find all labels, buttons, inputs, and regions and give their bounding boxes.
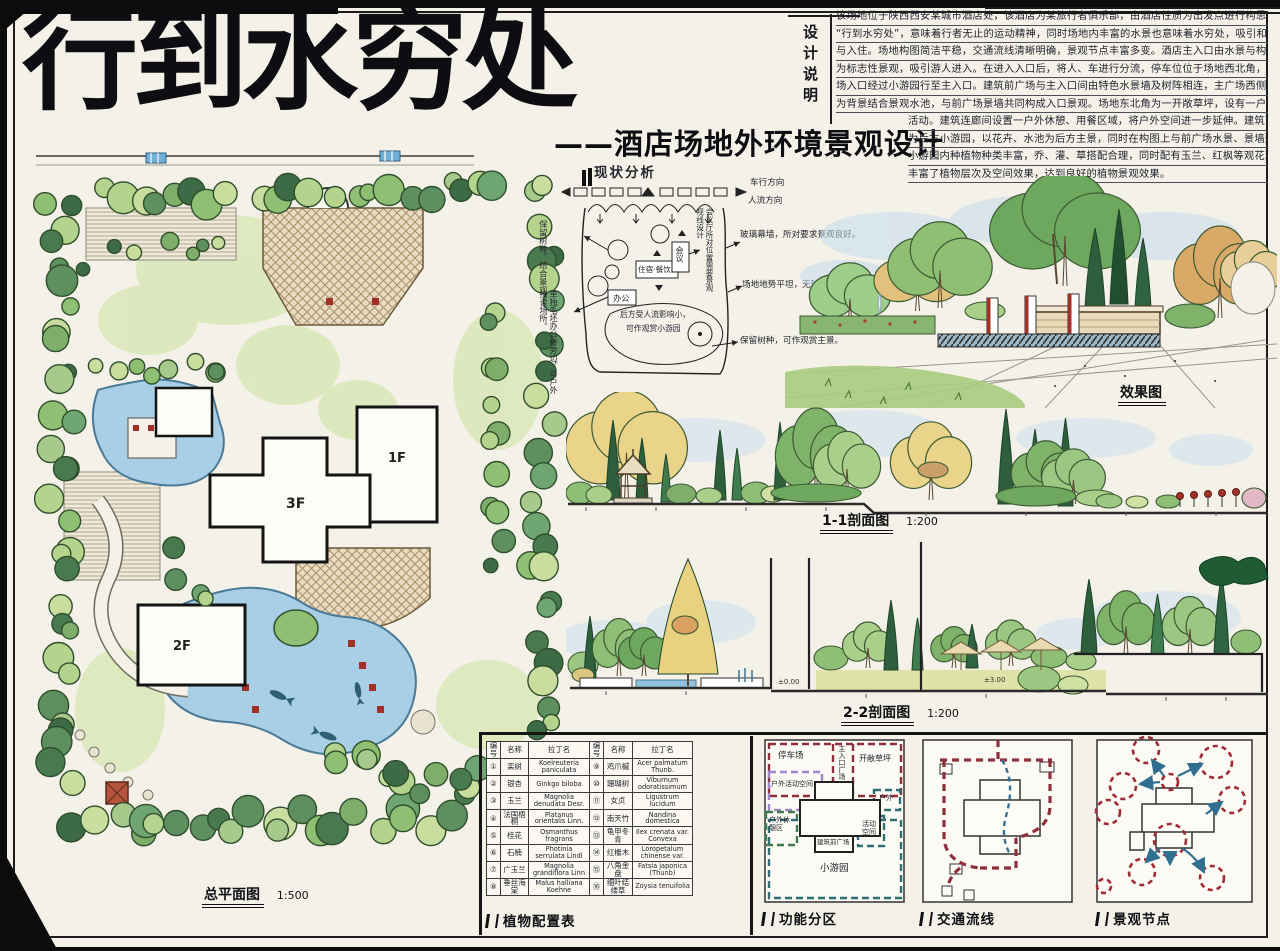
zone-lawn: 开敞草坪 — [859, 754, 891, 763]
section-2-2-scale: 1:200 — [927, 707, 959, 720]
section-1-1-drawing — [566, 392, 1270, 518]
plant-cell: Nandina domestica — [633, 810, 693, 827]
plant-cell: Malus halliana Koehne — [529, 878, 590, 895]
entry-plaza-paving — [263, 208, 423, 325]
plant-cell: 垂丝海棠 — [501, 878, 529, 895]
master-plan-caption-text: 总平面图 — [202, 887, 264, 908]
design-notes-line: 小游园内种植物种类丰富，乔、灌、草搭配合理，同时配有玉兰、红枫等观花观叶、色叶树… — [908, 148, 1268, 166]
spiral-feature — [411, 710, 435, 734]
building-annex — [156, 388, 212, 436]
pine-branch — [1199, 556, 1268, 585]
plant-cell: 龟甲冬青 — [604, 827, 633, 844]
presentation-board: 行到水穷处 ——酒店场地外环境景观设计 设计说明 该场地位于陕西西安某城市酒店处… — [0, 0, 1280, 951]
scan-line-top-right-1 — [985, 7, 1280, 9]
circulation-panel — [920, 736, 1076, 906]
plant-cell: ⑫ — [590, 810, 604, 827]
plant-table-row: ⑥石楠Photinia serrulata Lindl⑭红檵木Loropetal… — [487, 844, 693, 861]
plant-cell: ⑪ — [590, 793, 604, 810]
design-notes-label: 设计说明 — [800, 24, 821, 128]
plant-table-row: ③玉兰Magnolia denudata Desr.⑪女贞Ligustrum l… — [487, 793, 693, 810]
zoning-caption-text: 功能分区 — [779, 912, 837, 928]
plant-cell: ⑩ — [590, 776, 604, 793]
zone-entry-plaza: 主入口广场 — [838, 745, 846, 795]
plant-table-row: ⑤桂花Osmanthus fragrans⑬龟甲冬青Ilex crenata v… — [487, 827, 693, 844]
design-notes-line: 场入口经过小游园行至主入口。建筑前广场与主入口间由特色水景墙及树阵相连，主广场西… — [836, 78, 1268, 96]
plant-cell: 鸡爪槭 — [604, 759, 633, 776]
nodes-caption-text: 景观节点 — [1113, 912, 1171, 928]
zoning-caption: 功能分区 — [762, 908, 837, 928]
zone-outdoor-rest: 户外休憩区 — [769, 816, 793, 832]
plant-table-row: ④法国梧桐Platanus orientalis Linn.⑫南天竹Nandin… — [487, 810, 693, 827]
nodes-caption: 景观节点 — [1096, 908, 1171, 928]
scan-edge-left — [0, 0, 7, 951]
section-1-1-caption: 1-1剖面图 1:200 — [820, 510, 938, 530]
zoning-panel: 停车场 主入口广场 开敞草坪 户外活动空间 户外休憩区 户外 活动空间 建筑前广… — [762, 736, 908, 906]
plant-cell: Photinia serrulata Lindl — [529, 844, 590, 861]
plant-cell: Osmanthus fragrans — [529, 827, 590, 844]
zone-outdoor-activity: 户外活动空间 — [771, 780, 819, 788]
plant-cell: ③ — [487, 793, 501, 810]
level-mark-a: ±0.00 — [778, 678, 799, 686]
plant-cell: ⑭ — [590, 844, 604, 861]
plant-cell: ⑤ — [487, 827, 501, 844]
plant-table-row: ⑧垂丝海棠Malus halliana Koehne⑯细叶结缕草Zoysia t… — [487, 878, 693, 895]
col-header: 拉丁名 — [529, 742, 590, 759]
zone-outdoor: 户外 — [879, 794, 893, 802]
plant-table-caption-text: 植物配置表 — [503, 914, 576, 930]
plant-cell: 广玉兰 — [501, 861, 529, 878]
level-mark-b: ±3.00 — [984, 676, 1005, 684]
plant-cell: Loropetalum chinense var. — [633, 844, 693, 861]
plant-cell: 石楠 — [501, 844, 529, 861]
plant-cell: 栾树 — [501, 759, 529, 776]
rear-garden-note-2: 可作观赏小游园 — [626, 324, 681, 334]
reflecting-pool — [938, 334, 1160, 347]
plant-cell: ④ — [487, 810, 501, 827]
plant-cell: Fatsia japonica (Thunb) — [633, 861, 693, 878]
design-notes-line: 为后方小游园，以花卉、水池为后方主景，同时在构图上与前广场水景、景墙形成景观主轴… — [908, 131, 1268, 149]
design-notes-line: 与入住。场地构图简洁平稳，交通流线清晰明确，景观节点丰富多变。酒店主入口由水景与… — [836, 43, 1268, 61]
vehicle-direction-label: 车行方向 — [750, 178, 784, 189]
divider-horizontal — [482, 732, 1268, 735]
plant-cell: Magnolia denudata Desr. — [529, 793, 590, 810]
master-plan-scale: 1:500 — [277, 889, 309, 902]
plant-table-header-row: 编号 名称 拉丁名 编号 名称 拉丁名 — [487, 742, 693, 759]
analysis-title: 现状分析 — [594, 165, 656, 182]
divider-vertical-mid — [750, 736, 753, 935]
design-notes-line: 为背景结合景观水池，与前广场景墙共同构成入口景观。场地东北角为一开敞草坪，设有一… — [836, 96, 1268, 114]
plant-cell: ① — [487, 759, 501, 776]
plant-cell: Viburnum odoratissimum — [633, 776, 693, 793]
plant-table-row: ①栾树Koelreuteria paniculata⑨鸡爪槭Acer palma… — [487, 759, 693, 776]
plant-cell: Ilex crenata var. Convexa — [633, 827, 693, 844]
section-columns — [771, 542, 921, 691]
floor-label-1f: 1F — [388, 451, 406, 466]
plant-cell: ⑦ — [487, 861, 501, 878]
plant-cell: ⑯ — [590, 878, 604, 895]
plant-cell: 珊瑚树 — [604, 776, 633, 793]
scan-edge-bottom — [0, 947, 1280, 951]
section-2-2-caption: 2-2剖面图 1:200 — [841, 702, 959, 722]
zone-front-plaza: 建筑前广场 — [817, 839, 850, 846]
plant-cell: Platanus orientalis Linn. — [529, 810, 590, 827]
meeting-box-label: 会议 — [674, 246, 684, 274]
plant-cell: 细叶结缕草 — [604, 878, 633, 895]
planter-hedge — [800, 316, 935, 334]
pond-island — [274, 610, 318, 646]
plant-cell: Koelreuteria paniculata — [529, 759, 590, 776]
plant-table-row: ⑦广玉兰Magnolia grandiflora Linn⑮八角金盘Fatsia… — [487, 861, 693, 878]
building-2f — [138, 605, 245, 685]
section-1-1-scale: 1:200 — [906, 515, 938, 528]
circulation-caption: 交通流线 — [920, 908, 995, 928]
meeting-sightline-note: 会议厅所对位置需要景观视线设计 — [690, 208, 714, 294]
section-1-1-caption-text: 1-1剖面图 — [820, 513, 893, 534]
floor-label-2f: 2F — [173, 639, 191, 654]
design-notes-line: 该场地位于陕西西安某城市酒店处，该酒店为某旅行者俱乐部，由酒店性质为出发点进行构… — [836, 8, 1268, 26]
office-note: 单独毛坯办公楼旁边，与户外接读场所。 — [532, 290, 558, 398]
scan-edge-top-thick — [0, 8, 338, 14]
plant-cell: 红檵木 — [604, 844, 633, 861]
col-header: 编号 — [590, 742, 604, 759]
plant-cell: Zoysia tenuifolia — [633, 878, 693, 895]
plant-cell: 八角金盘 — [604, 861, 633, 878]
plant-cell: 银杏 — [501, 776, 529, 793]
zone-garden: 小游园 — [820, 864, 849, 875]
col-header: 名称 — [604, 742, 633, 759]
plant-cell: Ligustrum lucidum — [633, 793, 693, 810]
office-box-label: 办公 — [613, 293, 629, 303]
col-header: 名称 — [501, 742, 529, 759]
scan-line-top-right-2 — [985, 12, 1280, 14]
plant-cell: Ginkgo biloba — [529, 776, 590, 793]
plant-table-caption: 植物配置表 — [486, 910, 576, 930]
section-2-2-drawing: ±0.00 ±3.00 — [566, 542, 1270, 704]
plant-cell: ⑬ — [590, 827, 604, 844]
divider-vertical-left — [479, 732, 482, 935]
plant-cell: ⑮ — [590, 861, 604, 878]
design-notes-line: “行到水穷处”，意味着行者无止的运动精神，同时场地内丰富的水景也意味着水穷处，吸… — [836, 26, 1268, 44]
zone-activity-space: 活动空间 — [862, 820, 878, 836]
col-header: 拉丁名 — [633, 742, 693, 759]
red-bollards — [1177, 489, 1240, 508]
plant-cell: ⑧ — [487, 878, 501, 895]
design-notes-line: 为标志性景观，吸引游人进入。在进入入口后，将人、车进行分流，停车位位于场地西北角… — [836, 61, 1268, 79]
plant-cell: 玉兰 — [501, 793, 529, 810]
lodging-box-label: 住宿·餐饮 — [638, 265, 671, 274]
master-plan-caption: 总平面图 1:500 — [202, 884, 309, 904]
section-2-2-caption-text: 2-2剖面图 — [841, 705, 914, 726]
plant-cell: 法国梧桐 — [501, 810, 529, 827]
plant-cell: ② — [487, 776, 501, 793]
plant-cell: 桂花 — [501, 827, 529, 844]
notes-rule-v — [830, 14, 832, 124]
people-direction-label: 人流方向 — [748, 196, 782, 207]
plant-cell: ⑨ — [590, 759, 604, 776]
rear-garden-note-1: 后方受人流影响小， — [620, 310, 690, 320]
plant-cell: Acer palmatum Thunb. — [633, 759, 693, 776]
perspective-drawing — [785, 176, 1277, 408]
plant-cell: 南天竹 — [604, 810, 633, 827]
col-header: 编号 — [487, 742, 501, 759]
plant-cell: ⑥ — [487, 844, 501, 861]
plant-schedule-table: 编号 名称 拉丁名 编号 名称 拉丁名 ①栾树Koelreuteria pani… — [486, 741, 693, 896]
circulation-caption-text: 交通流线 — [937, 912, 995, 928]
design-notes-line: 活动。建筑连廊间设置一户外休憩、用餐区域，将户外空间进一步延伸。建筑南侧由入口通 — [908, 113, 1268, 131]
plant-cell: Magnolia grandiflora Linn — [529, 861, 590, 878]
zone-parking: 停车场 — [778, 752, 804, 762]
plant-table-row: ②银杏Ginkgo biloba⑩珊瑚树Viburnum odoratissim… — [487, 776, 693, 793]
garden-pavilion — [106, 782, 128, 804]
nodes-drawing — [1094, 736, 1256, 906]
water-feature-wall — [1035, 312, 1160, 334]
circulation-drawing — [920, 736, 1076, 906]
design-notes-text: 该场地位于陕西西安某城市酒店处，该酒店为某旅行者俱乐部，由酒店性质为出发点进行构… — [836, 8, 1268, 183]
floor-label-3f: 3F — [286, 496, 305, 512]
nodes-panel — [1094, 736, 1256, 906]
plant-cell: 女贞 — [604, 793, 633, 810]
page-title: 行到水穷处 — [22, 2, 572, 120]
